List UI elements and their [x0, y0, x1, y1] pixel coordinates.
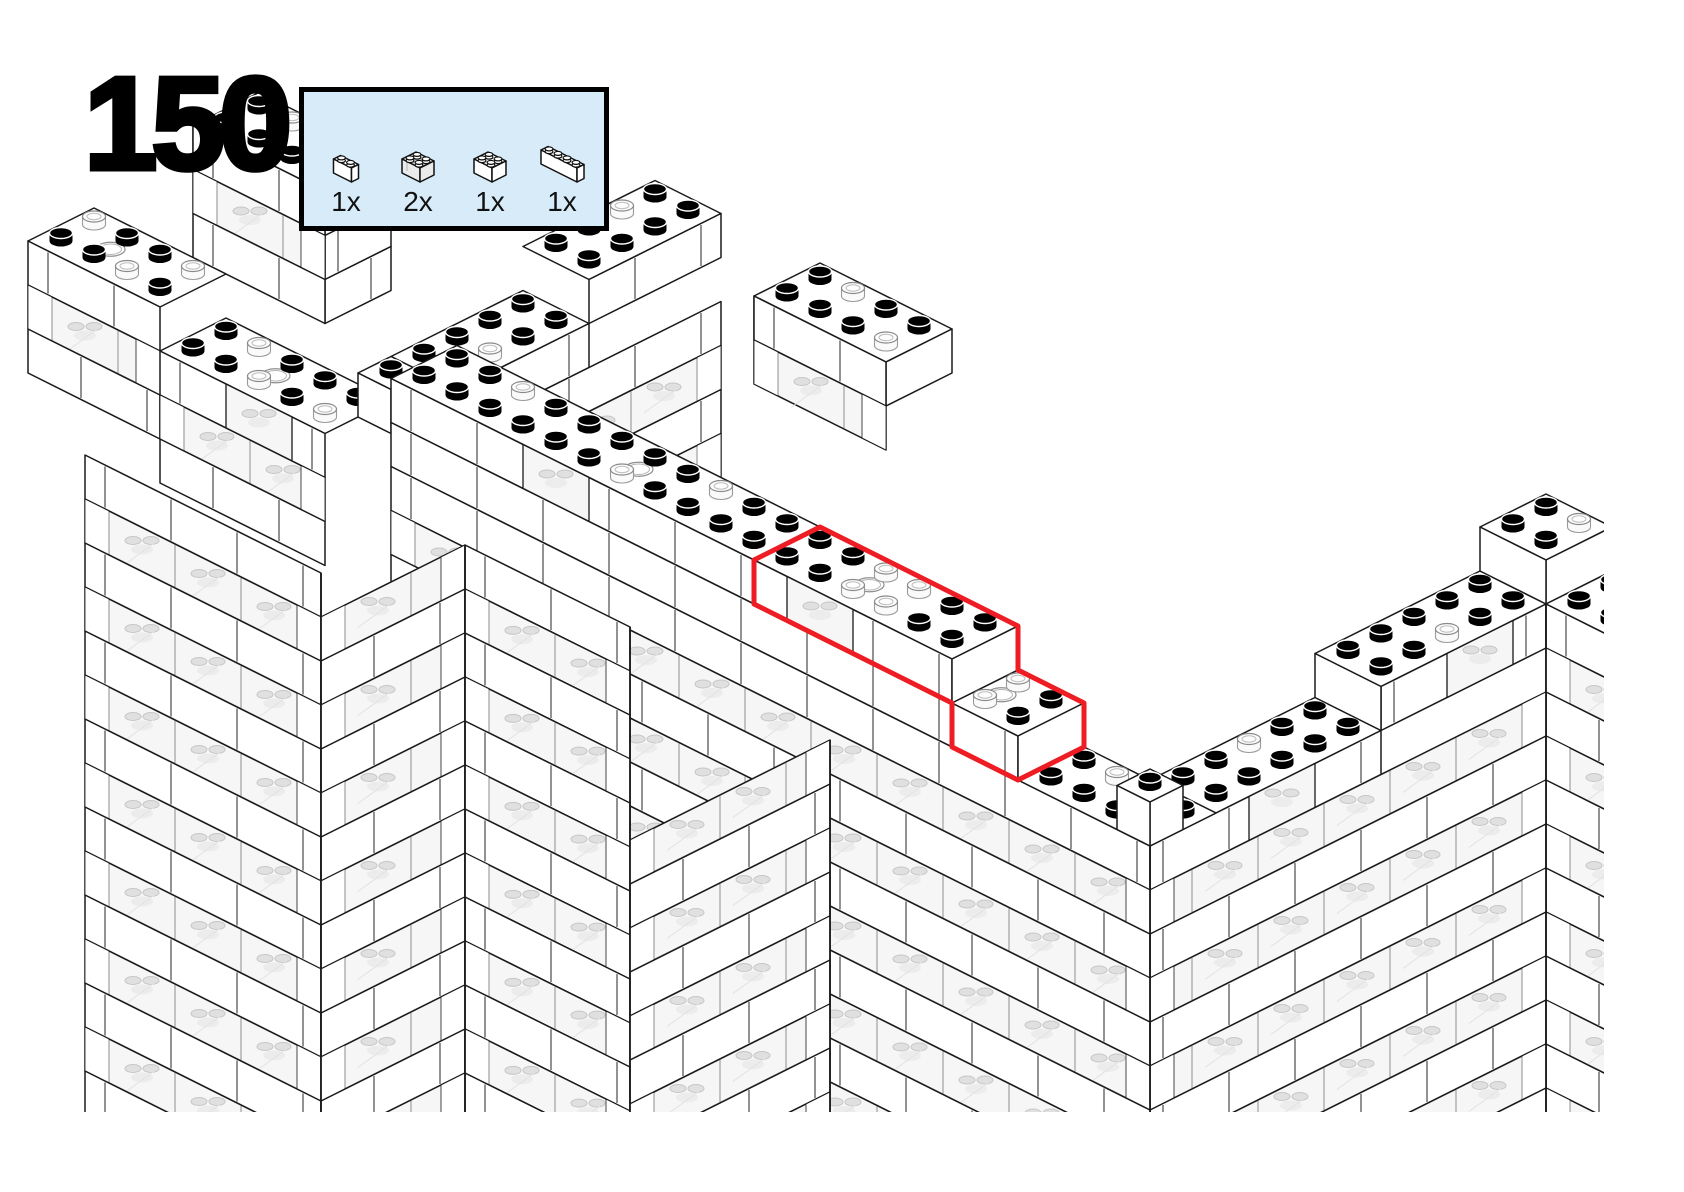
step-number: 150 [84, 58, 286, 190]
part-icon-brick-1x4 [537, 132, 588, 188]
main-right-wall [1150, 494, 1684, 1192]
part-count: 2x [403, 188, 433, 216]
part-icon-brick-1x2 [326, 132, 366, 188]
part-count: 1x [475, 188, 505, 216]
part-item: 2x [384, 132, 452, 216]
instruction-page: { "page": {"width": 1684, "height": 1192… [0, 0, 1684, 1192]
part-icon-brick-2x2 [470, 132, 510, 188]
part-item: 1x [312, 132, 380, 216]
part-count: 1x [331, 188, 361, 216]
back-middle-ridge [754, 263, 952, 450]
part-count: 1x [547, 188, 577, 216]
part-item: 1x [528, 132, 596, 216]
building-drawing [28, 93, 1684, 1192]
parts-panel: 1x 2x 1x 1x [299, 87, 609, 231]
part-item: 1x [456, 132, 524, 216]
part-icon-brick-2x2-trans [398, 132, 438, 188]
